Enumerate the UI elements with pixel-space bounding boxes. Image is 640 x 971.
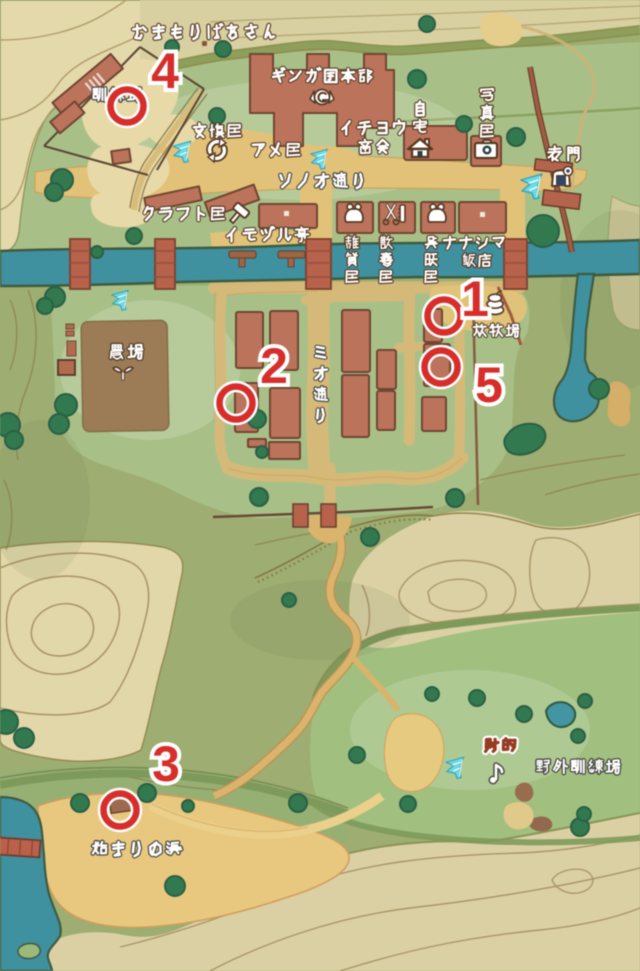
- svg-text:3: 3: [152, 736, 180, 792]
- svg-text:1: 1: [461, 271, 489, 327]
- svg-text:5: 5: [475, 357, 503, 413]
- svg-text:4: 4: [151, 43, 179, 99]
- svg-text:2: 2: [260, 338, 288, 394]
